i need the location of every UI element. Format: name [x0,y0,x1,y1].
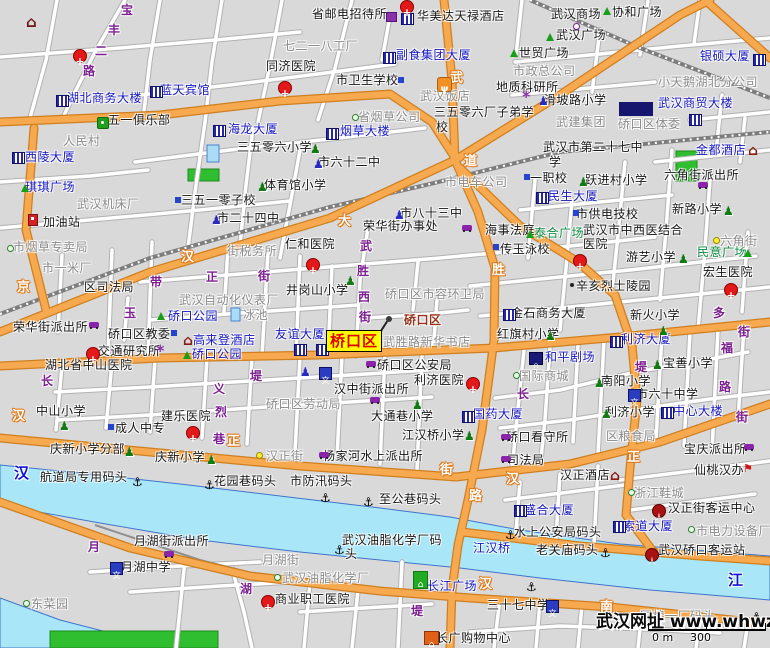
car-icon [319,452,329,458]
map-label: 硚口区劳动局 [266,398,341,411]
hotel-icon [437,77,452,92]
map-label: 三五一零子校 [181,194,256,207]
map-label: 江汉桥小学 [402,429,465,442]
map-label: 路 [719,381,732,394]
cross-icon [573,254,587,268]
map-label: 湖北商务大楼 [67,92,142,105]
car-icon [164,551,174,557]
map-label: 航道局专用码头 [40,471,128,484]
bldg-icon [689,114,702,126]
sq-icon [175,197,181,203]
tri-icon [510,49,518,57]
map-label: 长江广场 [427,580,477,593]
anchor-icon [334,544,345,556]
map-label: 义 [213,383,226,396]
map-label: 仙桃汉办 [694,464,744,477]
map-label: 多 [713,307,726,320]
map-label: 滑坡路小学 [544,94,607,107]
car-icon [89,322,99,328]
gas-icon [28,214,38,226]
map-label: 同济医院 [266,60,316,73]
map-label: 月湖中学 [121,561,171,574]
map-label: 硚口区公安局 [377,359,452,372]
map-label: 长广购物中心 [436,632,511,645]
flag-icon [743,463,753,474]
map-label: 堤 [411,605,424,618]
scale-end-label: 300 [690,631,711,644]
map-label: 市六十中学 [636,388,699,401]
map-label: 西 [358,291,371,304]
labels-layer: 省邮电招待所华美达天禄酒店同济医院市卫生学校武汉商场协和广场武汉广场世贸广场地质… [0,0,770,648]
map-label: 辛亥烈士陵园 [576,280,651,293]
map-label: 街 [440,464,454,478]
map-label: 市六十二中 [318,156,381,169]
house-icon [610,470,620,482]
dy-icon [256,452,263,459]
map-label: 巷 [213,433,226,446]
pg-icon [464,430,475,442]
cross-icon [261,595,275,609]
cross-icon [86,347,100,361]
map-label: 路 [83,65,96,78]
map-label: 成人中专 [115,422,165,435]
map-label: 一职校 [530,172,568,185]
map-label: 胜 [492,264,506,278]
map-label: 市电车公司 [445,176,508,189]
bldg-icon [753,54,766,66]
map-label: 路 [469,490,483,504]
tri-icon [744,249,752,257]
dg-icon [688,526,695,533]
map-label: 区粮食局 [606,430,656,443]
map-label: 加油站 [43,216,81,229]
bldg-icon [503,309,516,321]
map-label: 汉 [181,251,195,265]
anchor-icon [600,547,611,559]
map-label: 带 [150,276,163,289]
map-label: 花园巷码头 [214,475,277,488]
map-label: 福 [721,342,734,355]
anchor-icon [526,581,537,593]
pg-icon [206,454,217,466]
map-label: 武汉自动化仪表厂 [179,294,279,307]
map-label: 硚口区体委 [618,118,681,131]
sq-icon [493,244,499,250]
map-label: 六角街 [720,235,758,248]
map-label: 省烟草公司 [358,111,421,124]
map-label: 至公巷码头 [379,493,442,506]
map-label: 华美达天禄酒店 [417,10,505,23]
shop-icon [424,631,439,645]
cross-icon [278,81,292,95]
house-icon [748,145,758,157]
map-label: 金石商务大厦 [511,307,586,320]
map-label: 副食集团大厦 [396,49,471,62]
pg-icon [723,205,734,217]
dg-icon [628,489,635,496]
map-label: 玉 [124,307,137,320]
bldg-icon [12,152,25,164]
tri-icon [183,351,191,359]
map-canvas[interactable]: 省邮电招待所华美达天禄酒店同济医院市卫生学校武汉商场协和广场武汉广场世贸广场地质… [0,0,770,648]
map-label: 泰合广场 [534,227,584,240]
pb-icon [394,209,405,221]
pb-icon [211,214,222,226]
map-label: 六角街派出所 [664,169,739,182]
map-label: 二 [95,45,108,58]
map-label: 世贸广场 [519,47,569,60]
sq-icon [171,330,177,336]
map-label: 老关庙码头 [536,544,599,557]
dg-icon [23,600,30,607]
map-label: 银硕大厦 [700,50,750,63]
map-label: 月 [88,541,101,554]
map-label: 长 [41,375,54,388]
map-label: 三五零六厂子弟学 [434,106,534,119]
anchor-icon [132,476,143,488]
map-label: 市防汛码头 [290,475,353,488]
map-label: 硚口区教委 [108,328,171,341]
map-label: 硚口区市容环卫局 [385,288,485,301]
pg-icon [658,325,669,337]
tri-icon [21,184,29,192]
pg-icon [412,399,423,411]
map-label: 江 [728,573,743,589]
dy-icon [713,237,720,244]
map-label: 大 [338,215,352,229]
map-label: 盛合大厦 [524,504,574,517]
map-label: 正 [227,435,241,449]
map-label: 高来登酒店 [193,334,256,347]
map-label: 宝庆派出所 [684,443,747,456]
cross-icon [400,0,414,14]
anchor-icon [204,479,215,491]
map-label: 索道大厦 [623,520,673,533]
pc-icon [652,504,666,518]
map-label: 武建集团 [556,116,606,129]
house-icon [183,335,193,347]
pb-icon [313,158,324,170]
map-label: 月湖街 [262,554,300,567]
fact-icon [26,16,37,29]
tri-icon [546,33,554,41]
car-icon [744,444,754,450]
tri-icon [157,312,165,320]
map-label: 新火小学 [630,309,680,322]
map-label: 武汉硚口客运站 [658,544,746,557]
map-label: 街 [258,270,271,283]
map-label: 民生大厦 [548,190,598,203]
tri-icon [526,230,534,238]
map-label: 汉 [12,410,26,424]
map-label: 宝善小学 [663,357,713,370]
pg-icon [345,275,356,287]
map-label: 冰池 [243,309,268,322]
pb-icon [300,366,311,378]
map-label: 传玉泳校 [500,243,550,256]
map-label: 武汉广场 [556,29,606,42]
map-label: 市二十四中 [217,212,280,225]
map-label: 省邮电招待所 [312,8,387,21]
map-label: 中心大楼 [673,405,723,418]
wen-icon [628,389,641,402]
map-label: 井岗山小学 [286,284,349,297]
bldg-icon [613,521,626,533]
bldg-icon [514,505,527,517]
map-label: 五一俱乐部 [108,114,171,127]
map-label: 街 [359,311,372,324]
map-label: 琪琪广场 [25,181,75,194]
map-label: 交通研究所 [98,345,161,358]
map-label: 江汉桥 [473,542,511,555]
map-label: 胜 [357,265,370,278]
map-label: 汉 [506,473,520,487]
map-label: 荣华街派出所 [13,321,88,334]
scale-start-label: 0 m [652,631,673,644]
pg-icon [545,330,556,342]
sq-icon [524,174,530,180]
wen-icon [546,600,559,613]
map-label: 武胜路新华书店 [383,336,471,349]
wen-icon [110,562,123,575]
pg-icon [124,446,135,458]
map-label: 烈 [215,406,228,419]
dk-icon [570,283,574,287]
bldg-icon [536,192,549,204]
map-label: 跃进村小学 [585,174,648,187]
map-label: 武 [450,72,464,86]
car-icon [370,397,380,403]
car-icon [366,361,376,367]
sq-icon [573,210,579,216]
cross-icon [724,283,738,297]
car-icon [462,225,472,231]
bldg-icon [462,411,475,423]
sq-icon [398,77,404,83]
dg-icon [352,114,359,121]
pg-icon [310,143,321,155]
scale-bar-line [648,624,766,631]
map-label: 区司法局 [84,281,134,294]
map-label: 汉 [479,578,493,592]
map-label: 武汉油脂化学厂码 [342,534,442,547]
map-label: 宝 [121,4,134,17]
map-label: 街 [738,326,751,339]
map-label: 武 [360,240,373,253]
pc-icon [645,548,659,562]
pg-icon [59,420,70,432]
map-label: 汉正酒店 [560,469,610,482]
dp-icon [573,23,580,30]
map-label: 庆新小学分部 [50,443,125,456]
map-label: 游艺小学 [626,251,676,264]
map-label: 新路小学 [672,203,722,216]
map-label: 市一米厂 [42,262,92,275]
map-label: 人民村 [63,135,101,148]
anchor-icon [320,492,331,504]
map-label: 七二一八工厂 [283,40,358,53]
map-label: 利济小学 [605,406,655,419]
pg-icon [652,359,663,371]
map-label: 西陵大厦 [25,151,75,164]
map-label: 学 [549,156,562,169]
map-label: 水上公安局码头 [514,526,602,539]
map-label: 市电力设备厂 [696,525,770,538]
cross-icon [73,49,87,63]
map-label: 汉中街派出所 [334,383,409,396]
car-icon [501,434,511,440]
pg-icon [594,377,605,389]
map-label: 汉 [14,466,29,482]
map-label: 汉正街客运中心 [668,502,756,515]
map-label: 武汉机床厂 [77,198,140,211]
bldg-icon [150,86,163,98]
map-label: 杨家河水上派出所 [323,450,423,463]
map-label: 硚口公园 [168,310,218,323]
pg-icon [601,408,612,420]
map-label: 市卫生学校 [336,74,399,87]
mail-icon [386,12,397,22]
map-label: 仁和医院 [285,238,335,251]
map-label: 堤 [635,361,648,374]
map-label: 和平剧场 [545,351,595,364]
cross-icon [186,426,200,440]
map-label: 正 [206,271,219,284]
map-label: 国际商城 [519,370,569,383]
map-label: 利济医院 [414,374,464,387]
map-label: 金都酒店 [696,144,746,157]
pg-icon [257,181,268,193]
wen-icon [319,367,332,380]
map-label: 街税务所 [227,245,277,258]
map-label: 武汉油脂化学厂 [282,572,370,585]
search-result-highlight[interactable]: 桥口区 [326,330,382,352]
map-label: 街 [736,411,749,424]
map-label: 医院 [583,238,608,251]
map-label: 正 [627,451,641,465]
map-label: 市烟草专卖局 [13,241,88,254]
tri-icon [603,7,611,15]
map-label: 小天鹅湖北分公司 [658,76,758,89]
car-icon [698,182,708,188]
bldg-icon [383,52,396,64]
scale-bar: 0 m 300 [648,624,766,643]
map-label: 浙江鞋城 [634,487,684,500]
map-label: 市政总公司 [513,65,576,78]
map-label: 硚口看守所 [506,431,569,444]
map-label: 司法局 [507,454,545,467]
bldg-icon [610,336,623,348]
anchor-icon [363,496,374,508]
pg-icon [678,253,689,265]
star-icon [522,92,530,102]
cross-icon [306,258,320,272]
bldg-icon [56,95,69,107]
anchor-icon [505,529,516,541]
car-icon [501,456,511,462]
bldg-icon [213,125,226,137]
map-label: 武汉市第二十七中 [543,141,643,154]
map-label: 大通巷小学 [371,410,434,423]
map-label: 硚口公园 [192,348,242,361]
map-label: 湖 [240,583,253,596]
bldg-icon [661,407,674,419]
map-label: 汉正街 [266,450,304,463]
map-label: 庆新小学 [155,451,205,464]
map-label: 国药大厦 [473,408,523,421]
theater-icon [529,352,543,365]
map-label: 宏生医院 [703,266,753,279]
map-label: 道 [464,155,478,169]
map-label: 月湖街派出所 [134,535,209,548]
map-label: 体育馆小学 [264,179,327,192]
sq-icon [108,424,114,430]
bldg-icon [326,128,339,140]
pg-icon [578,176,589,188]
map-label: 武汉市中西医结合 [583,224,683,237]
dg-icon [7,245,14,252]
bldg-icon [294,344,307,356]
map-label: 建乐医院 [161,410,211,423]
map-label: 烟草大楼 [340,125,390,138]
star-icon [156,346,164,356]
map-label: 南阳小学 [601,375,651,388]
map-label: 友谊大厦 [275,328,325,341]
dg-icon [513,372,520,379]
map-label: 蓝天宾馆 [160,84,210,97]
map-label: 丰 [108,24,121,37]
map-label: 京 [17,281,31,295]
map-label: 海龙大厦 [228,123,278,136]
map-label: 长 [517,388,530,401]
grn-icon [413,571,428,589]
map-label: 三五零六小学 [237,141,312,154]
park-icon [97,117,109,129]
map-label: 市八十三中 [400,207,463,220]
map-label: 校 [436,121,449,134]
map-label: 三十七中学 [487,599,550,612]
map-label: 商业职工医院 [275,593,350,606]
pb-icon [538,95,549,107]
map-label: 硚口区 [404,314,442,327]
map-label: 市供电技校 [576,208,639,221]
dg-icon [274,574,281,581]
map-label: 堤 [250,370,263,383]
map-label: 头 [345,548,358,561]
map-label: 协和广场 [612,6,662,19]
map-label: 武汉商场 [551,8,601,21]
map-label: 中山小学 [36,405,86,418]
map-label: 东菜园 [31,598,69,611]
map-label: 武汉商贸大楼 [658,97,733,110]
cross-icon [466,377,480,391]
